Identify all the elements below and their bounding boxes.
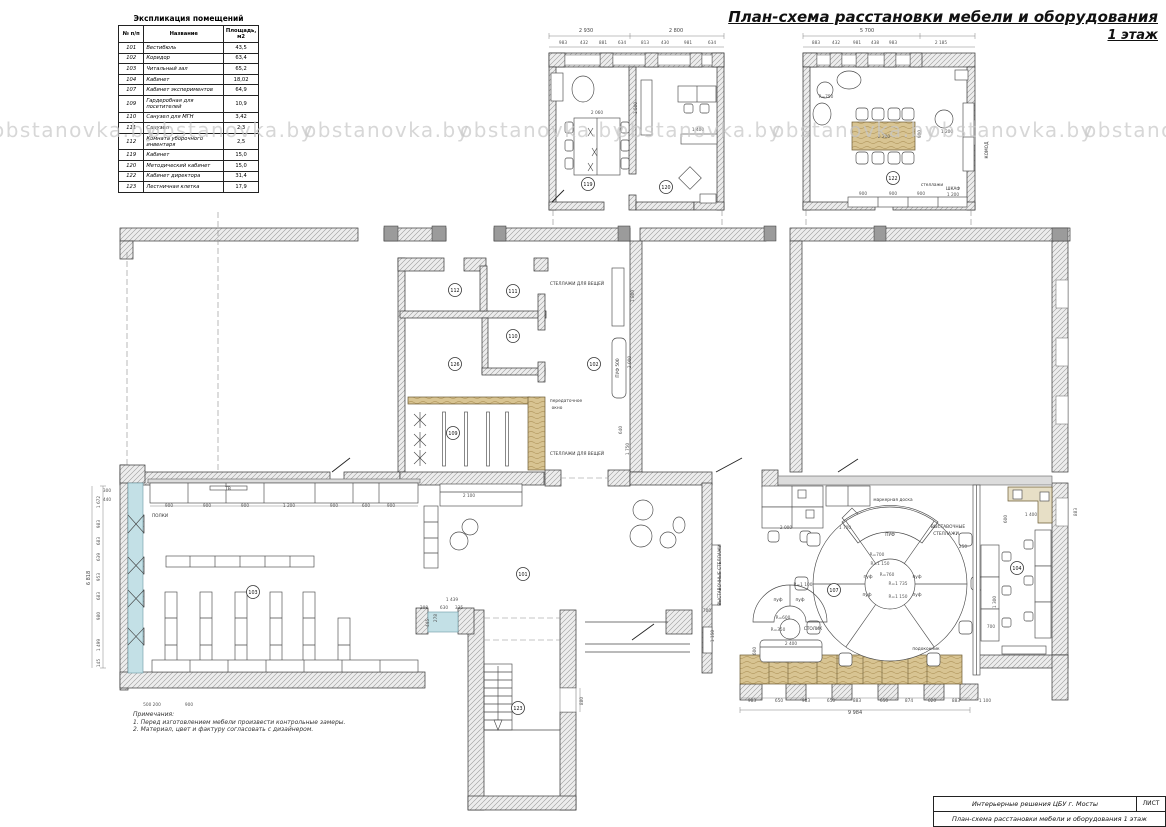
- annotation-label: пуф: [795, 597, 804, 603]
- dimension-label: 900: [387, 503, 395, 509]
- legend-cell: 103: [119, 64, 144, 75]
- dimension-label: 883: [853, 698, 861, 704]
- annotation-label: передаточное: [550, 399, 583, 404]
- dimension-label: 883: [1073, 508, 1079, 516]
- dimension-label: 1 200: [941, 129, 954, 135]
- dimension-label: 900: [917, 191, 925, 197]
- legend-cell: 43,5: [224, 43, 259, 54]
- dimension-label: 683: [96, 537, 102, 545]
- legend-cell: 15,0: [224, 150, 259, 161]
- furniture: [150, 70, 1051, 730]
- room-legend: Экспликация помещений № п/п Название Пло…: [118, 14, 259, 193]
- legend-cell: 2,5: [224, 133, 259, 150]
- annotation-label: КОМОД: [984, 141, 990, 159]
- legend-cell: Кабинет директора: [144, 171, 224, 182]
- dimension-label: 700: [987, 624, 995, 630]
- dimension-label: 1 300: [992, 596, 998, 609]
- dimension-label: R=760: [880, 572, 895, 578]
- room-number: 110: [508, 334, 517, 340]
- legend-title: Экспликация помещений: [118, 14, 259, 23]
- legend-row: 107Кабинет экспериментов64,9: [119, 85, 259, 96]
- annotation-label: ПОЛКИ: [152, 513, 168, 519]
- dimension-label: 2 060: [591, 110, 604, 116]
- room-number: 101: [518, 572, 527, 578]
- dimension-label: 650: [880, 698, 888, 704]
- dimension-label: 980: [96, 612, 102, 620]
- legend-header-area: Площадь, м2: [224, 26, 259, 43]
- title-block: Интерьерные решения ЦБУ г. Мосты ЛИСТ Пл…: [933, 796, 1166, 827]
- legend-cell: 120: [119, 160, 144, 171]
- dimension-label: 953: [96, 573, 102, 581]
- annotation-label: ПУФ: [885, 532, 895, 538]
- dimension-label: 600: [1003, 515, 1009, 523]
- dimension-label: 683: [96, 592, 102, 600]
- legend-row: 123Лестничная клетка17,9: [119, 182, 259, 193]
- dimension-label: 335: [455, 605, 463, 611]
- dimension-label: 983: [559, 40, 567, 46]
- room-number: 109: [448, 431, 457, 437]
- dimension-label: 900: [330, 503, 338, 509]
- dimension-label: 600: [752, 647, 758, 655]
- dimension-label: 620: [928, 698, 936, 704]
- room-number: 104: [1012, 566, 1021, 572]
- legend-cell: Кабинет экспериментов: [144, 85, 224, 96]
- legend-row: 104Кабинет18,02: [119, 74, 259, 85]
- annotation-label: ВЫСТАВОЧНЫЕ: [931, 524, 966, 530]
- legend-row: 109Гардеробная для посетителей10,9: [119, 95, 259, 112]
- legend-row: 122Кабинет директора31,4: [119, 171, 259, 182]
- dimension-label: 983: [748, 698, 756, 704]
- legend-cell: 119: [119, 150, 144, 161]
- annotation-label: СТЕЛЛАЖИ ДЛЯ ВЕЩЕЙ: [550, 280, 604, 287]
- annotation-label: СТОЛИК: [804, 626, 823, 632]
- dimension-label: 640: [618, 426, 624, 434]
- annotation-label: маркерная доска: [873, 498, 913, 503]
- notes: Примечания: 1. Перед изготовлением мебел…: [133, 711, 345, 733]
- dimension-label: 1 700: [839, 525, 852, 531]
- dimension-label: R=1 100: [794, 582, 813, 588]
- dimension-label: 300: [103, 488, 111, 494]
- dimension-label: 500 200: [143, 702, 161, 708]
- dimension-label: 278: [433, 614, 439, 622]
- annotation-label: окно: [552, 406, 563, 411]
- dimension-label: 1 200: [947, 192, 960, 198]
- legend-cell: 122: [119, 171, 144, 182]
- dimension-label: 445: [425, 619, 431, 627]
- dimension-label: 700: [703, 608, 711, 614]
- room-number: 103: [248, 590, 257, 596]
- dimension-label: 2 930: [579, 28, 593, 34]
- dimension-label: 983: [802, 698, 810, 704]
- legend-row: 110Санузел для МГН3,42: [119, 112, 259, 123]
- dimension-label: 6 818: [86, 571, 92, 585]
- annotation-label: ШКАФ: [946, 186, 961, 192]
- dimension-label: 2 000: [627, 356, 633, 369]
- dimension-label: R=1 150: [871, 561, 890, 567]
- legend-cell: Коридор: [144, 53, 224, 64]
- room-number: 111: [508, 289, 517, 295]
- dimension-label: 2 400: [785, 641, 798, 647]
- dimension-label: 1 500: [633, 102, 639, 115]
- dimension-label: R=600: [776, 615, 791, 621]
- dimension-label: 250: [959, 544, 967, 550]
- dimension-label: 430: [661, 40, 669, 46]
- legend-header-name: Название: [144, 26, 224, 43]
- annotation-label: ПУФ 500: [615, 358, 621, 377]
- drawing-title-line2: 1 этаж: [728, 28, 1158, 43]
- dimension-label: 600: [362, 503, 370, 509]
- annotation-label: СТЕЛЛАЖИ: [933, 531, 959, 537]
- dimension-label: 1 800: [630, 290, 636, 303]
- dimension-label: 630: [440, 605, 448, 611]
- annotation-label: пуф: [912, 574, 921, 580]
- dimension-label: 1 499: [96, 639, 102, 652]
- dimension-label: 881: [599, 40, 607, 46]
- legend-cell: 109: [119, 95, 144, 112]
- legend-cell: Читальный зал: [144, 64, 224, 75]
- annotation-label: ТВ: [224, 486, 231, 492]
- dimension-label: 900: [917, 130, 923, 138]
- legend-cell: 31,4: [224, 171, 259, 182]
- doors: [332, 190, 858, 640]
- legend-cell: 107: [119, 85, 144, 96]
- dimension-label: 900: [889, 191, 897, 197]
- title-block-drawing-title: План-схема расстановки мебели и оборудов…: [934, 812, 1165, 826]
- legend-row: 119Кабинет15,0: [119, 150, 259, 161]
- legend-cell: 3,42: [224, 112, 259, 123]
- legend-cell: Санузел: [144, 123, 224, 134]
- room-number: 120: [661, 185, 670, 191]
- legend-cell: Кабинет: [144, 74, 224, 85]
- legend-cell: 102: [119, 53, 144, 64]
- dimension-label: 432: [580, 40, 588, 46]
- window-sills: [128, 483, 458, 673]
- dimension-label: 2 800: [669, 28, 683, 34]
- legend-row: 102Коридор63,4: [119, 53, 259, 64]
- legend-cell: 112: [119, 133, 144, 150]
- legend-cell: 123: [119, 182, 144, 193]
- legend-cell: 110: [119, 112, 144, 123]
- legend-header-number: № п/п: [119, 26, 144, 43]
- annotation-label: ВЫСТАВОЧНЫЕ СТЕЛЛАЖИ: [717, 544, 723, 605]
- room-number: 126: [450, 362, 459, 368]
- dimension-label: 145: [96, 659, 102, 667]
- dimension-label: 650: [827, 698, 835, 704]
- dimension-label: 883: [952, 698, 960, 704]
- legend-cell: 18,02: [224, 74, 259, 85]
- dimension-label: 440: [103, 497, 111, 503]
- room-number: 122: [888, 176, 897, 182]
- dimension-label: 634: [708, 40, 716, 46]
- legend-cell: Вестибюль: [144, 43, 224, 54]
- legend-cell: Комната уборочного инвентаря: [144, 133, 224, 150]
- dimension-label: R=1 735: [889, 581, 908, 587]
- legend-cell: 15,0: [224, 160, 259, 171]
- legend-cell: Гардеробная для посетителей: [144, 95, 224, 112]
- dimension-label: 1 150: [710, 630, 716, 643]
- dimension-label: 981: [684, 40, 692, 46]
- dimension-label: 880: [579, 697, 585, 705]
- legend-cell: Лестничная клетка: [144, 182, 224, 193]
- dimension-label: 1 439: [446, 597, 459, 603]
- note-item: 2. Материал, цвет и фактуру согласовать …: [133, 726, 345, 733]
- annotation-label: пуф: [863, 574, 872, 580]
- dimension-label: 900: [859, 191, 867, 197]
- annotation-label: пуф: [862, 592, 871, 598]
- dimension-label: R=1 150: [889, 594, 908, 600]
- room-number: 123: [513, 706, 522, 712]
- dimension-label: 1 100: [979, 698, 992, 704]
- annotation-label: пуф: [773, 597, 782, 603]
- legend-cell: 17,9: [224, 182, 259, 193]
- dimension-label: 650: [775, 698, 783, 704]
- legend-cell: Санузел для МГН: [144, 112, 224, 123]
- room-number: 107: [829, 588, 838, 594]
- note-item: 1. Перед изготовлением мебели произвести…: [133, 719, 345, 726]
- dimension-label: 2 100: [463, 493, 476, 499]
- legend-row: 103Читальный зал65,2: [119, 64, 259, 75]
- dimension-label: 1 400: [1025, 512, 1038, 518]
- notes-heading: Примечания:: [133, 711, 345, 718]
- dimension-label: R=700: [870, 552, 885, 558]
- legend-header-row: № п/п Название Площадь, м2: [119, 26, 259, 43]
- dimension-label: 1 750: [625, 443, 631, 456]
- legend-cell: 64,9: [224, 85, 259, 96]
- dimension-label: 639: [96, 553, 102, 561]
- dimension-label: 208: [420, 605, 428, 611]
- legend-row: 101Вестибюль43,5: [119, 43, 259, 54]
- dimension-label: 2 000: [780, 525, 793, 531]
- legend-cell: 104: [119, 74, 144, 85]
- dimension-label: 813: [641, 40, 649, 46]
- dimension-label: 1 200: [283, 503, 296, 509]
- dimension-label: 874: [905, 698, 913, 704]
- dimension-label: 2 200: [878, 134, 891, 140]
- legend-cell: 111: [119, 123, 144, 134]
- title-block-project: Интерьерные решения ЦБУ г. Мосты: [934, 797, 1137, 811]
- dimension-label: R=750: [819, 94, 834, 100]
- legend-cell: 63,4: [224, 53, 259, 64]
- drawing-title: План-схема расстановки мебели и оборудов…: [728, 8, 1158, 43]
- dimension-label: 1 672: [96, 496, 102, 509]
- room-number: 102: [589, 362, 598, 368]
- dimension-label: 634: [618, 40, 626, 46]
- title-block-sheet-label: ЛИСТ: [1137, 797, 1165, 811]
- legend-row: 120Методический кабинет15,0: [119, 160, 259, 171]
- dimension-label: 900: [185, 702, 193, 708]
- dimension-label: 983: [96, 520, 102, 528]
- legend-cell: Кабинет: [144, 150, 224, 161]
- legend-cell: 65,2: [224, 64, 259, 75]
- legend-cell: 2,3: [224, 123, 259, 134]
- dimension-label: 900: [203, 503, 211, 509]
- legend-table: № п/п Название Площадь, м2 101Вестибюль4…: [118, 25, 259, 193]
- legend-cell: 101: [119, 43, 144, 54]
- annotation-label: СТЕЛЛАЖИ ДЛЯ ВЕЩЕЙ: [550, 450, 604, 457]
- annotation-label: пуф: [912, 592, 921, 598]
- drawing-title-line1: План-схема расстановки мебели и оборудов…: [728, 8, 1158, 26]
- drawing-sheet: obstanovka.byobstanovka.byobstanovka.byo…: [0, 0, 1166, 827]
- annotation-label: стеллажи: [921, 183, 944, 188]
- room-number: 112: [450, 288, 459, 294]
- legend-row: 111Санузел2,3: [119, 123, 259, 134]
- annotation-label: подоконник: [912, 647, 940, 652]
- dimension-label: 900: [165, 503, 173, 509]
- legend-row: 112Комната уборочного инвентаря2,5: [119, 133, 259, 150]
- dimension-label: 9 984: [848, 710, 862, 716]
- room-number: 119: [583, 182, 592, 188]
- dimension-label: 1 400: [692, 127, 705, 133]
- legend-cell: 10,9: [224, 95, 259, 112]
- dimension-label: 900: [241, 503, 249, 509]
- legend-cell: Методический кабинет: [144, 160, 224, 171]
- dimension-label: R=350: [771, 627, 786, 633]
